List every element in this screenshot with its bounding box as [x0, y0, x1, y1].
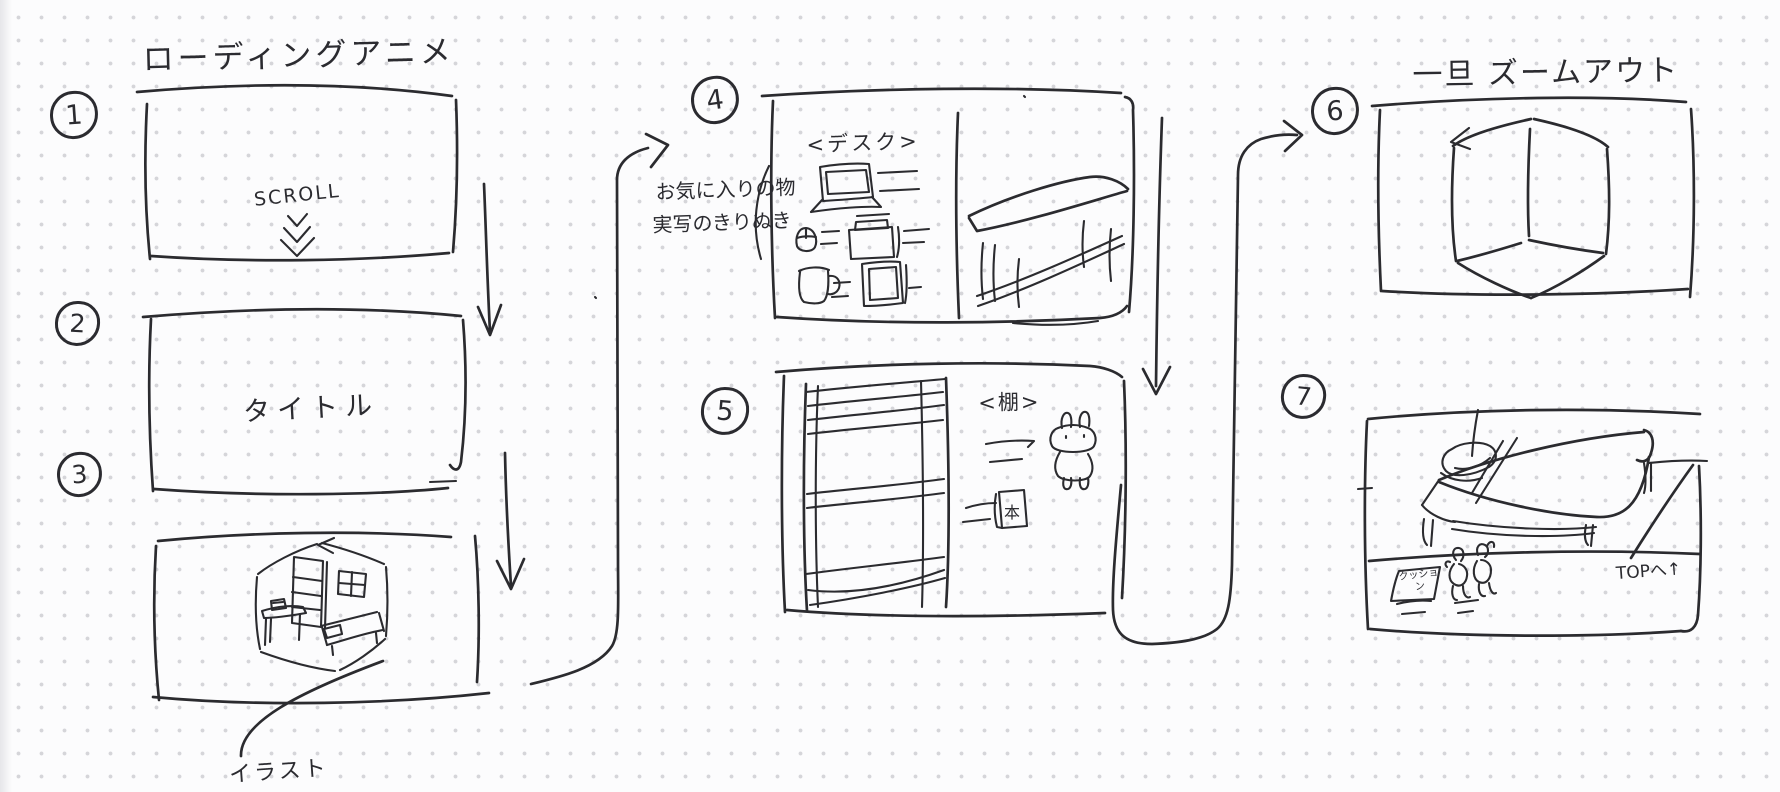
panel5-frame — [776, 363, 1126, 616]
photo-frame-icon — [862, 262, 921, 306]
plush-doodles — [1446, 542, 1496, 600]
panel4-note-line1: お気に入りの物 — [655, 171, 796, 205]
panel4-note-line2: 実写のきりぬき — [652, 204, 792, 238]
panel5-shelf-heading: <棚> — [978, 386, 1041, 417]
panel6-frame — [1372, 98, 1694, 297]
arrow-1-to-2 — [478, 184, 501, 335]
panel1-frame — [137, 85, 457, 260]
arrow-2-to-3 — [497, 453, 524, 589]
panel7-dash-lines — [1397, 600, 1478, 614]
bookshelf-sketch — [804, 378, 949, 611]
bed-sketch — [1422, 410, 1653, 546]
arrow-3-to-4 — [531, 134, 668, 684]
mouse-icon — [796, 228, 839, 251]
top-link-pointer-line — [1631, 465, 1693, 558]
laptop-icon — [811, 164, 919, 212]
panel7-cushion-label: クッション — [1398, 567, 1441, 596]
desk-sketch — [969, 177, 1128, 307]
section-title-loading: ローディングアニメ — [142, 26, 455, 79]
panel5-book-label: 本 — [1004, 499, 1020, 523]
panel7-top-link-label: TOPへ↑ — [1615, 554, 1682, 583]
storyboard-sketch: ローディングアニメ 一旦 ズームアウト 1 2 3 4 5 6 7 SCROLL… — [0, 0, 1780, 792]
isometric-room-sketch — [256, 538, 388, 671]
triple-chevron-down-icon — [281, 214, 314, 256]
arrow-5-to-6 — [1113, 121, 1302, 644]
panel4-frame — [762, 89, 1134, 325]
panel4-desk-heading: <デスク> — [806, 125, 920, 159]
mug-icon — [799, 267, 850, 303]
illustration-pointer-line — [241, 661, 383, 756]
rabbit-character-doodle — [1050, 412, 1095, 489]
room-cube-zoomed-out — [1451, 119, 1609, 298]
radio-box-icon — [849, 214, 929, 259]
arrow-4-to-5 — [1143, 118, 1170, 394]
shelf-dash-lines — [963, 441, 1034, 522]
panel2-title-label: タイトル — [242, 383, 380, 429]
section-title-zoom-out: 一旦 ズームアウト — [1412, 45, 1679, 94]
